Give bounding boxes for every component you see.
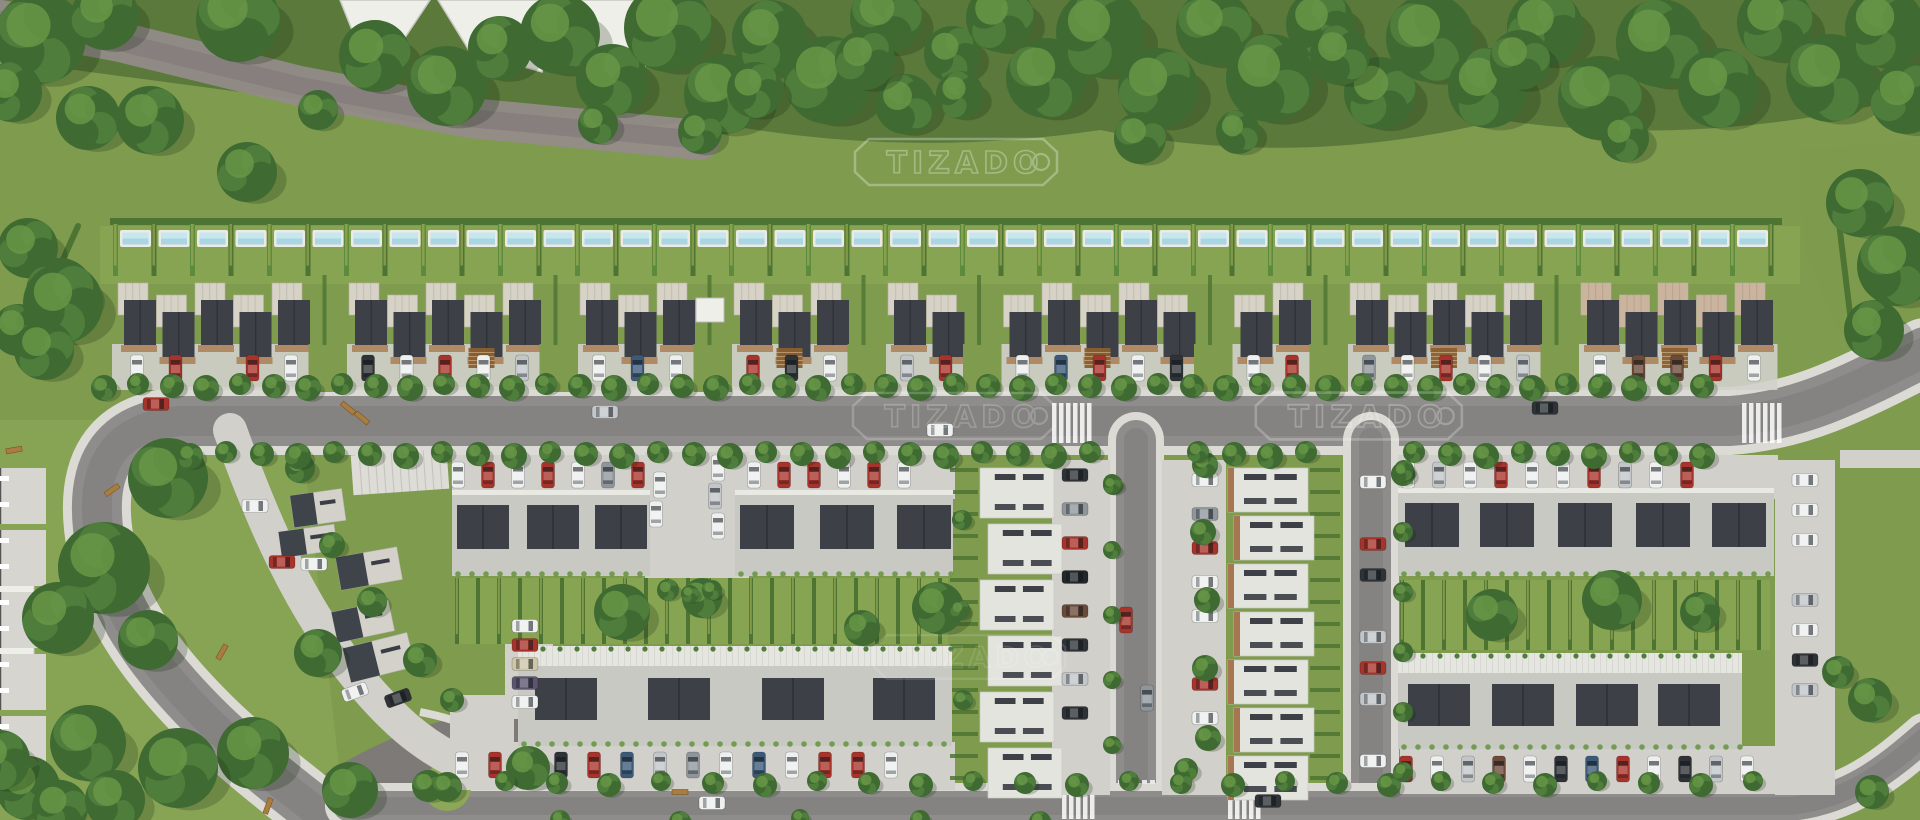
car-roof (623, 762, 632, 770)
car (712, 513, 725, 539)
pool-water-glint (777, 233, 803, 239)
terrace-rib (1738, 653, 1739, 673)
house-wall (1507, 345, 1543, 352)
b2-house-solar (1280, 738, 1302, 744)
car-windshield (1480, 360, 1490, 365)
lot-hedge-highlight (345, 224, 348, 266)
terrace-planting (557, 646, 562, 651)
bar-foot-planting (1555, 744, 1561, 750)
car-windshield (1377, 570, 1382, 580)
car (512, 696, 538, 709)
car-rear-window (710, 502, 720, 506)
car-windshield (1649, 761, 1659, 766)
tree-highlight (1396, 644, 1406, 654)
garden-hedge (728, 578, 732, 644)
garden-shed (696, 298, 724, 322)
tree-highlight (1319, 378, 1331, 390)
tree-highlight (436, 776, 450, 790)
bar-foot-planting (703, 741, 709, 747)
car-windshield (1209, 713, 1214, 723)
bar-foot-planting (1751, 571, 1757, 577)
car-roof (1070, 675, 1078, 684)
car (1062, 503, 1088, 516)
car-roof (1368, 757, 1376, 766)
b1-house-solar (995, 504, 1016, 510)
roof-ridge (178, 312, 179, 358)
terrace-rib (1720, 653, 1721, 673)
car-rear-window (688, 771, 698, 775)
car-rear-window (1796, 535, 1800, 545)
bar-foot-planting (1723, 744, 1729, 750)
terrace-planting (1539, 653, 1544, 658)
b2-house-solar (1244, 474, 1266, 480)
b2-house-solar (1274, 594, 1296, 600)
bar-foot-planting (1569, 744, 1575, 750)
car-roof (1095, 365, 1104, 373)
car-windshield (517, 360, 527, 365)
aerial-development-render: TIZADOTIZADOTIZADOTIZADO (0, 0, 1920, 820)
tree-highlight (683, 587, 692, 596)
pool-water-glint (739, 233, 765, 239)
pool-water-glint (931, 233, 957, 239)
car-rear-window (147, 399, 151, 409)
tree-highlight (130, 376, 141, 387)
garden-hedge (518, 578, 522, 644)
car-windshield (1287, 360, 1297, 365)
lot-hedge-highlight (1616, 224, 1619, 266)
bar-foot-planting (1625, 744, 1631, 750)
terrace-rib (768, 646, 769, 666)
roof-ridge (255, 312, 256, 358)
bar-foot-planting (885, 741, 891, 747)
car (1192, 576, 1218, 589)
car (1464, 462, 1477, 488)
house-wall (352, 345, 388, 352)
terrace-rib (1498, 653, 1499, 673)
watermark-text: TIZADO (884, 400, 1041, 435)
car-windshield (171, 360, 181, 365)
car-windshield (716, 798, 721, 808)
yard-hedge (1310, 600, 1340, 604)
terrace-rib (1684, 653, 1685, 673)
car-rear-window (1589, 481, 1599, 485)
car-rear-window (516, 659, 520, 669)
tree-highlight (932, 33, 959, 60)
tree-highlight (1045, 446, 1057, 458)
bar-foot-planting (549, 741, 555, 747)
car-roof (1249, 365, 1258, 373)
garden-hedge (560, 578, 564, 644)
car-rear-window (1651, 481, 1661, 485)
bar-foot-planting (759, 741, 765, 747)
terrace-planting (574, 646, 579, 651)
tree-highlight (1421, 378, 1433, 390)
car-windshield (160, 399, 165, 409)
car-rear-window (589, 771, 599, 775)
terrace-rib (1516, 653, 1517, 673)
car-windshield (899, 467, 909, 472)
car-rear-window (1620, 481, 1630, 485)
car-rear-window (839, 481, 849, 485)
car-roof (810, 472, 819, 480)
car (1192, 508, 1218, 521)
tree-highlight (1354, 376, 1365, 387)
car-windshield (402, 360, 412, 365)
car-rear-window (1196, 577, 1200, 587)
tree-highlight (919, 588, 944, 613)
roof-ridge (1487, 312, 1488, 358)
tree-highlight (1129, 58, 1167, 96)
car-windshield (1377, 756, 1382, 766)
pool-water-glint (315, 233, 341, 239)
bar-foot-planting (822, 571, 828, 577)
b2-house-solar (1280, 522, 1302, 528)
tree-highlight (181, 446, 193, 458)
tree-highlight (299, 378, 311, 390)
pool-water-glint (700, 233, 726, 239)
car-roof (454, 472, 463, 480)
car-rear-window (1364, 539, 1368, 549)
roof-ridge (294, 300, 295, 346)
terrace-rib (894, 646, 895, 666)
car-rear-window (517, 374, 527, 378)
bar-foot-planting (1457, 571, 1463, 577)
terrace-rib (792, 646, 793, 666)
tree-highlight (397, 446, 409, 458)
car-windshield (1809, 505, 1814, 515)
tree-highlight (866, 444, 877, 455)
car (1360, 538, 1386, 551)
bar-foot-planting (1639, 571, 1645, 577)
b1-house-solar (1023, 586, 1044, 592)
lot-hedge-highlight (538, 224, 541, 266)
terrace-planting (659, 646, 664, 651)
bar-foot-planting (637, 571, 643, 577)
crosswalk-stripe (1756, 403, 1761, 443)
tree-highlight (1660, 376, 1671, 387)
b2-house-solar (1274, 690, 1296, 696)
tree-highlight (707, 378, 719, 390)
terrace-planting (1709, 653, 1714, 658)
tree-highlight (1261, 446, 1273, 458)
yard-hedge (950, 556, 978, 560)
garden-hedge-highlight (582, 578, 584, 634)
car-rear-window (1364, 632, 1368, 642)
bar-foot-planting (511, 571, 517, 577)
strip-house-dark-roof (290, 493, 318, 528)
yard-hedge (1310, 512, 1340, 516)
car-rear-window (1403, 374, 1413, 378)
car-windshield (1634, 360, 1644, 365)
bar-foot-planting (1653, 571, 1659, 577)
terrace-planting (812, 646, 817, 651)
pool-water-glint (1124, 233, 1150, 239)
yard-hedge (950, 534, 978, 538)
tree-highlight (660, 582, 671, 593)
car (1062, 707, 1088, 720)
terrace-rib (756, 646, 757, 666)
car-roof (656, 482, 665, 490)
tree-highlight (1009, 445, 1021, 457)
terrace-planting (744, 646, 749, 651)
car-roof (1403, 365, 1412, 373)
bar-foot-planting (1513, 571, 1519, 577)
car-windshield (688, 757, 698, 762)
b1-house-solar (1023, 504, 1044, 510)
tree-highlight (695, 64, 733, 102)
car-windshield (603, 467, 613, 472)
car-roof (750, 472, 759, 480)
crosswalk-stripe (1742, 403, 1747, 443)
terrace-rib (1486, 653, 1487, 673)
car (720, 752, 733, 778)
tree-highlight (966, 773, 976, 783)
bar-foot-planting (1695, 744, 1701, 750)
car (1532, 402, 1558, 415)
b1-house-solar (995, 698, 1016, 704)
car (687, 752, 700, 778)
b1-house-solar (1031, 754, 1052, 760)
carport-slat (469, 352, 495, 353)
terrace-rib (1732, 653, 1733, 673)
car-windshield (1595, 360, 1605, 365)
tree-highlight (600, 776, 612, 788)
tree-highlight (956, 692, 966, 702)
terrace-rib (636, 646, 637, 666)
bar-foot-planting (1681, 571, 1687, 577)
bar-foot-planting (934, 571, 940, 577)
car-rear-window (1796, 475, 1800, 485)
b2-house-solar (1274, 474, 1296, 480)
tree-highlight (1514, 444, 1525, 455)
car (1748, 355, 1761, 381)
car-roof (1712, 766, 1721, 774)
car-rear-window (1796, 685, 1800, 695)
bar-foot-planting (1415, 744, 1421, 750)
pool-water-glint (585, 233, 611, 239)
crosswalk-stripe (1763, 403, 1768, 443)
car-windshield (529, 659, 534, 669)
lot-hedge-highlight (961, 224, 964, 266)
terrace-rib (1528, 653, 1529, 673)
tree-highlight (300, 635, 323, 658)
tree-highlight (303, 95, 322, 114)
car-windshield (1079, 572, 1084, 582)
garden-hedge-highlight (1443, 580, 1445, 640)
car-rear-window (1711, 775, 1721, 779)
house-wall (121, 345, 157, 352)
car-windshield (1095, 360, 1105, 365)
pool-water-glint (1586, 233, 1612, 239)
car-rear-window (543, 481, 553, 485)
bar-foot-planting (801, 741, 807, 747)
perimeter-hedge (110, 218, 1782, 225)
terrace-rib (684, 646, 685, 666)
terrace-rib (618, 646, 619, 666)
car-rear-window (1196, 679, 1200, 689)
bar-foot-planting (1429, 571, 1435, 577)
tree-highlight (735, 69, 762, 96)
terrace-planting (795, 646, 800, 651)
car-roof (1526, 766, 1535, 774)
bar-ridge (735, 490, 953, 495)
car-roof (604, 472, 613, 480)
lot-hedge-highlight (923, 224, 926, 266)
car-roof (1070, 539, 1078, 548)
garden-hedge (1757, 580, 1761, 650)
lot-hedge-highlight (1654, 224, 1657, 266)
bench-seat (672, 790, 688, 795)
tree-highlight (1396, 704, 1406, 714)
car (1792, 684, 1818, 697)
car-roof (1800, 506, 1808, 515)
car-windshield (453, 467, 463, 472)
terrace-rib (1462, 653, 1463, 673)
b2-house-solar (1244, 666, 1266, 672)
car-windshield (440, 360, 450, 365)
b2-house-solar (1250, 642, 1272, 648)
car-rear-window (1749, 374, 1759, 378)
terrace-planting (693, 646, 698, 651)
b2-house-brown-edge (1234, 516, 1240, 560)
b2-house-solar (1280, 618, 1302, 624)
tree-highlight (946, 376, 957, 387)
bar-foot-planting (1443, 744, 1449, 750)
yard-hedge (1310, 490, 1340, 494)
car (1062, 605, 1088, 618)
pool-water-glint (431, 233, 457, 239)
car (1709, 355, 1722, 381)
tree-highlight (1693, 377, 1705, 389)
tree-highlight (810, 773, 820, 783)
car-roof (1528, 472, 1537, 480)
tree-highlight (1489, 377, 1501, 389)
car-rear-window (1465, 481, 1475, 485)
crosswalk-stripe (1142, 780, 1147, 784)
terrace-rib (588, 646, 589, 666)
car-roof (1070, 505, 1078, 514)
terrace-planting (608, 646, 613, 651)
car (1710, 756, 1723, 782)
car-rear-window (1796, 505, 1800, 515)
car-roof (1200, 714, 1208, 723)
terrace-rib (666, 646, 667, 666)
terrace-rib (840, 646, 841, 666)
terrace-rib (702, 646, 703, 666)
car-roof (1070, 709, 1078, 718)
bar-foot-planting (577, 741, 583, 747)
bar-roof-ridge (1662, 503, 1664, 547)
car (542, 462, 555, 488)
car (592, 406, 618, 419)
b2-house-solar (1250, 522, 1272, 528)
terrace-rib (1534, 653, 1535, 673)
bar-foot-planting (1695, 571, 1701, 577)
car-rear-window (1441, 374, 1451, 378)
car (1360, 693, 1386, 706)
lot-hedge-highlight (769, 224, 772, 266)
garden-hedge-highlight (1527, 580, 1529, 640)
terrace-planting (1505, 653, 1510, 658)
bar-foot-planting (1401, 571, 1407, 577)
terrace-rib (1552, 653, 1553, 673)
bar-foot-planting (1583, 571, 1589, 577)
car-roof (1070, 607, 1078, 616)
car-roof (1800, 536, 1808, 545)
crosswalk-stripe (1069, 795, 1074, 819)
tree-highlight (756, 776, 768, 788)
tree-highlight (1498, 37, 1527, 66)
bar-foot-planting (1765, 571, 1771, 577)
car (143, 398, 169, 411)
tree-highlight (705, 775, 716, 786)
terrace-rib (1546, 653, 1547, 673)
car-rear-window (779, 481, 789, 485)
car-windshield (609, 407, 614, 417)
roof-ridge (640, 312, 641, 358)
car-roof (1143, 695, 1152, 703)
car-rear-window (573, 481, 583, 485)
lot-hedge-highlight (1693, 224, 1696, 266)
pool-water-glint (1663, 233, 1689, 239)
tree-highlight (1082, 444, 1093, 455)
car-windshield (1682, 467, 1692, 472)
car-windshield (363, 360, 373, 365)
car-rear-window (1133, 374, 1143, 378)
car-rear-window (703, 798, 707, 808)
car-roof (1368, 540, 1376, 549)
car-rear-window (1172, 374, 1182, 378)
car (1360, 662, 1386, 675)
tree-highlight (1549, 445, 1561, 457)
car-roof (1800, 596, 1808, 605)
tree-highlight (1329, 775, 1340, 786)
yard-hedge (1310, 468, 1340, 472)
tree-highlight (605, 378, 617, 390)
bar-roof-ridge (1688, 684, 1690, 726)
terrace-rib (570, 646, 571, 666)
b2-house-solar (1274, 666, 1296, 672)
car-rear-window (1463, 775, 1473, 779)
tree-highlight (1625, 378, 1637, 390)
tree-highlight (942, 77, 965, 100)
roof-ridge (910, 300, 911, 346)
tree-highlight (197, 378, 209, 390)
tree-highlight (1013, 378, 1025, 390)
terrace-planting (778, 646, 783, 651)
pool-water-glint (277, 233, 303, 239)
tree-highlight (1689, 58, 1727, 96)
car (242, 500, 268, 513)
b1-house-solar (1031, 560, 1052, 566)
car (901, 355, 914, 381)
car-rear-window (248, 374, 258, 378)
tree-highlight (974, 444, 985, 455)
car-windshield (248, 360, 258, 365)
car-rear-window (1618, 775, 1628, 779)
tree-highlight (503, 378, 515, 390)
watermark-text: TIZADO (886, 146, 1043, 181)
pool-water-glint (1740, 233, 1766, 239)
tree-highlight (1194, 522, 1206, 534)
car-windshield (132, 360, 142, 365)
bar-foot-planting (1639, 744, 1645, 750)
b1-house-solar (995, 474, 1016, 480)
car-roof (633, 365, 642, 373)
car-windshield (1587, 761, 1597, 766)
tree-highlight (1441, 445, 1453, 457)
car-roof (518, 365, 527, 373)
